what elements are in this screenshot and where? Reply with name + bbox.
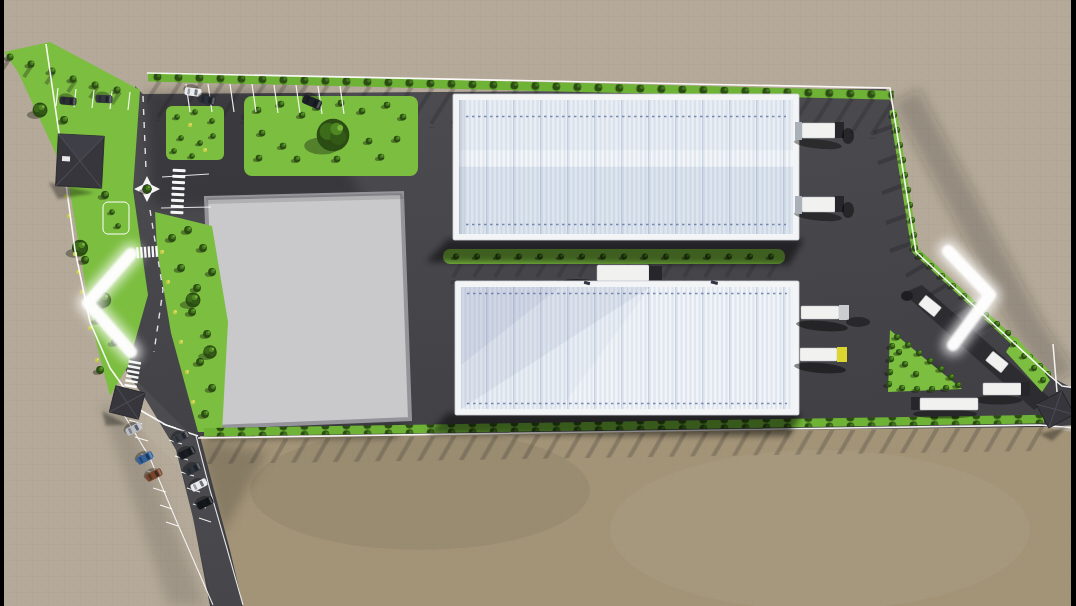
- photo-viewer: [0, 0, 1076, 606]
- concrete-pad: [206, 193, 410, 440]
- prev-image-button[interactable]: [60, 242, 146, 362]
- landscape-patch-2: [244, 96, 418, 176]
- next-image-button[interactable]: [926, 242, 1012, 358]
- image-viewer: { "viewer": { "type": "image-carousel", …: [0, 0, 1076, 606]
- site-plan-rendering: [0, 0, 1076, 606]
- letterbox-bar-right: [1071, 0, 1076, 606]
- small-green-island: [103, 202, 129, 234]
- letterbox-bar-left: [0, 0, 4, 606]
- chevron-right-icon: [926, 242, 1012, 358]
- chevron-left-icon: [60, 242, 146, 362]
- warehouse-north: [426, 94, 854, 265]
- landscape-patch-1: [166, 106, 224, 160]
